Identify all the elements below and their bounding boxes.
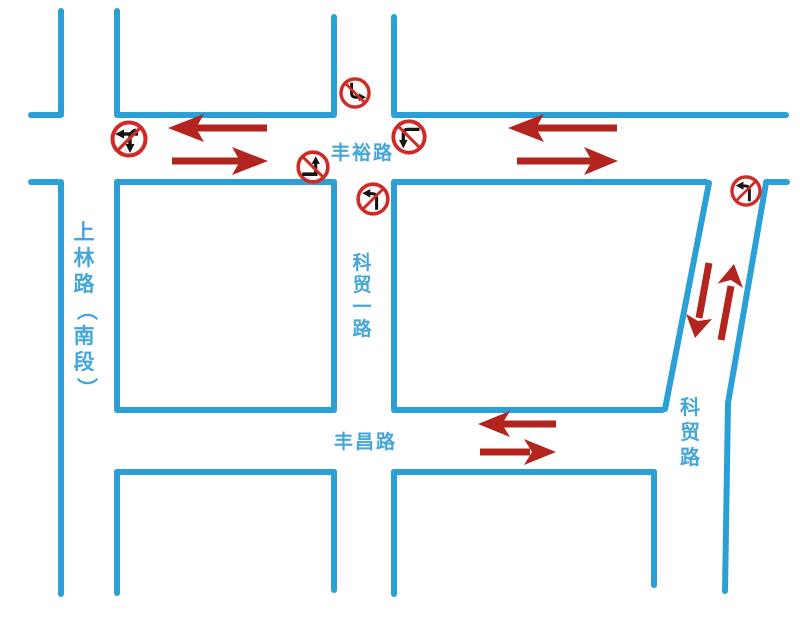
no-left-turn-northbound-sign [358,184,388,214]
road-edge-kemao-diagonal [665,183,766,591]
no-left-turn-kemao-sign [732,177,760,205]
two-way-flow-arrows-fengyu-east [508,114,618,175]
two-way-flow-arrows-kemao [686,263,743,340]
no-left-turn-westbound-sign [393,121,424,152]
no-right-turn-sign [341,79,369,107]
two-way-flow-arrows-fengyu-west [168,114,268,175]
no-straight-or-left-turn-sign [113,123,146,156]
traffic-restriction-map: 丰裕路 丰昌路 上 林 路 （ 南 段 ） 科 贸 一 路 科 贸 路 [0,0,800,620]
no-left-turn-eastbound-sign [298,152,328,182]
two-way-flow-arrows-fengchang [478,411,556,465]
map-overlay [0,0,800,620]
